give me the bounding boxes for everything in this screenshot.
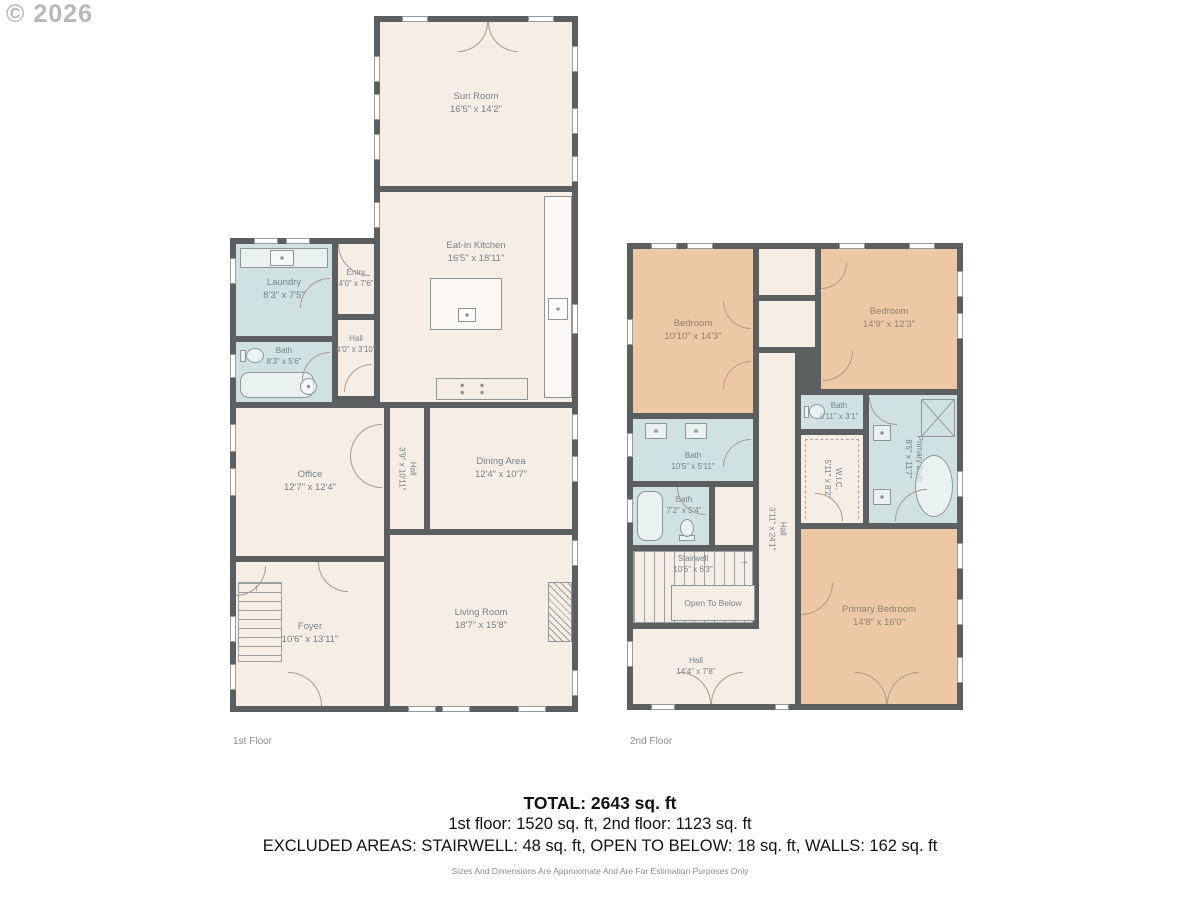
window-marker <box>230 424 236 452</box>
room-dining-area: Dining Area12'4" x 10'7" <box>430 408 572 529</box>
window-marker <box>518 706 546 712</box>
shower-icon <box>921 399 955 437</box>
open-to-below-box: Open To Below <box>671 585 755 621</box>
room-hall-vertical: Hall3'9" x 10'11" <box>390 408 424 529</box>
window-marker <box>572 108 578 134</box>
window-marker <box>627 499 633 523</box>
window-marker <box>286 238 310 244</box>
floor-areas-text: 1st floor: 1520 sq. ft, 2nd floor: 1123 … <box>0 815 1200 834</box>
window-marker <box>230 616 236 642</box>
toilet-icon <box>809 404 825 419</box>
bathtub-icon <box>637 491 663 541</box>
window-marker <box>651 704 675 710</box>
second-floor-label: 2nd Floor <box>630 736 672 747</box>
kitchen-sink-icon <box>548 298 568 320</box>
window-marker <box>572 456 578 482</box>
first-floor-plan: Sun Room16'5" x 14'2" Eat-in Kitchen16'5… <box>230 16 578 712</box>
window-marker <box>572 46 578 72</box>
window-marker <box>374 202 380 228</box>
second-floor-plan: Bedroom10'10" x 14'3" Bedroom14'9" x 12'… <box>627 243 963 710</box>
bath-sink-icon <box>300 378 317 395</box>
window-marker <box>230 354 236 378</box>
window-marker <box>957 313 963 339</box>
window-marker <box>775 704 789 710</box>
window-marker <box>957 543 963 569</box>
room-label: Bath8'3" x 5'6" <box>267 346 302 368</box>
room-closet <box>715 487 753 545</box>
window-marker <box>957 471 963 497</box>
room-living-room: Living Room18'7" x 15'8" <box>390 535 572 706</box>
room-label: Bath5'11" x 3'1" <box>820 401 859 423</box>
fireplace-icon <box>548 582 572 642</box>
window-marker <box>408 706 436 712</box>
room-hall-vertical: Hall3'11" x 24'1" <box>759 353 795 704</box>
room-closet <box>759 249 815 295</box>
room-label: Hall3'9" x 10'11" <box>396 447 418 490</box>
laundry-sink-icon <box>270 250 294 266</box>
room-eat-in-kitchen: Eat-in Kitchen16'5" x 18'11" <box>380 192 572 402</box>
window-marker <box>230 664 236 690</box>
room-label: Hall3'11" x 24'1" <box>766 507 788 550</box>
window-marker <box>957 599 963 625</box>
window-marker <box>651 243 677 249</box>
window-marker <box>572 304 578 334</box>
first-floor-label: 1st Floor <box>233 736 272 747</box>
window-marker <box>909 243 935 249</box>
excluded-areas-text: EXCLUDED AREAS: STAIRWELL: 48 sq. ft, OP… <box>0 837 1200 856</box>
room-bath-small: Bath5'11" x 3'1" <box>801 395 863 429</box>
window-marker <box>627 319 633 345</box>
room-label: Laundry8'3" x 7'5" <box>263 277 305 303</box>
room-label: Office12'7" x 12'4" <box>284 469 336 495</box>
window-marker <box>230 258 236 284</box>
window-marker <box>254 238 278 244</box>
room-label: Sun Room16'5" x 14'2" <box>450 91 502 117</box>
window-marker <box>627 433 633 457</box>
room-label: Bedroom10'10" x 14'3" <box>664 318 721 344</box>
open-to-below-label: Open To Below <box>684 598 742 608</box>
room-stairwell: Stairwell10'6" x 6'3" → Open To Below <box>633 551 753 623</box>
disclaimer-text: Sizes And Dimensions Are Approximate And… <box>0 866 1200 876</box>
window-marker <box>402 16 428 22</box>
room-primary-bedroom: Primary Bedroom14'8" x 16'0" <box>801 529 957 704</box>
room-sun-room: Sun Room16'5" x 14'2" <box>380 22 572 186</box>
room-label: Bedroom14'9" x 12'3" <box>863 306 915 332</box>
kitchen-counter-icon <box>544 196 572 398</box>
window-marker <box>374 94 380 120</box>
window-marker <box>572 156 578 182</box>
window-marker <box>442 706 470 712</box>
room-label: Eat-in Kitchen16'5" x 18'11" <box>446 240 505 266</box>
room-label: Hall4'0" x 3'10" <box>336 334 375 356</box>
stairs-direction-arrow-icon: → <box>739 557 749 567</box>
plan-background-mask <box>230 16 374 238</box>
window-marker <box>230 468 236 496</box>
copyright-watermark: © 2026 <box>6 0 93 29</box>
island-sink-icon <box>458 308 476 322</box>
window-marker <box>687 243 713 249</box>
room-label: Primary Bedroom14'8" x 16'0" <box>842 604 916 630</box>
bath-sink-icon <box>645 423 667 439</box>
window-marker <box>528 16 554 22</box>
room-label: Foyer10'6" x 13'11" <box>282 621 339 647</box>
window-marker <box>374 56 380 82</box>
stove-icon <box>436 378 528 400</box>
floor-plan-page: © 2026 Sun Room16'5" x 14'2" Eat-in Kitc… <box>0 0 1200 900</box>
kitchen-island-icon <box>430 278 502 330</box>
window-marker <box>374 134 380 160</box>
room-label: Living Room18'7" x 15'8" <box>455 607 508 633</box>
window-marker <box>839 243 865 249</box>
room-label: Dining Area12'4" x 10'7" <box>475 456 527 482</box>
bath-sink-icon <box>873 425 891 441</box>
window-marker <box>957 657 963 683</box>
room-closet <box>759 301 815 347</box>
bath-sink-icon <box>873 489 891 505</box>
window-marker <box>572 540 578 566</box>
window-marker <box>957 271 963 297</box>
toilet-icon <box>680 519 694 537</box>
bath-sink-icon <box>685 423 707 439</box>
window-marker <box>572 414 578 440</box>
window-marker <box>627 641 633 667</box>
total-area-text: TOTAL: 2643 sq. ft <box>0 793 1200 814</box>
toilet-icon <box>246 348 264 363</box>
room-label: Bath10'5" x 5'11" <box>671 451 714 473</box>
window-marker <box>572 670 578 696</box>
